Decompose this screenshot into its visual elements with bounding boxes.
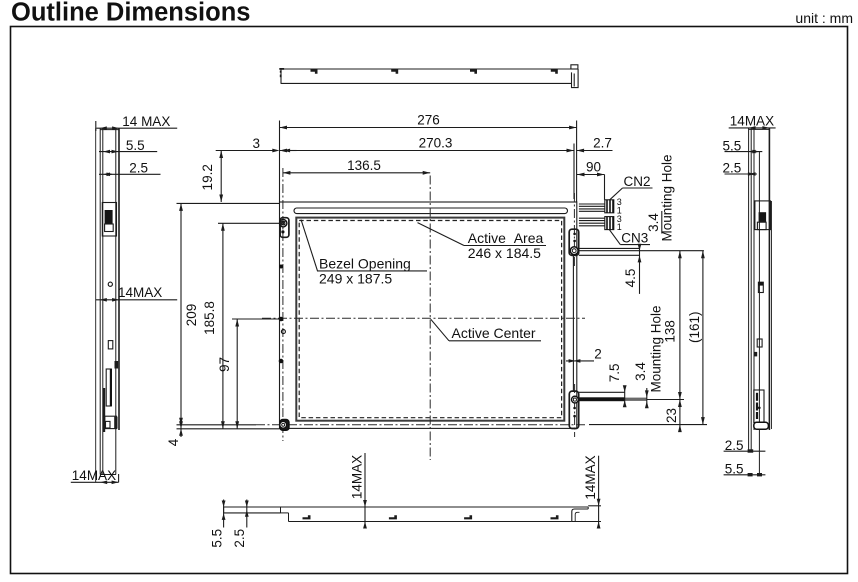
- svg-text:2.5: 2.5: [129, 161, 148, 176]
- svg-text:136.5: 136.5: [347, 158, 381, 173]
- svg-text:138: 138: [663, 320, 678, 343]
- svg-text:2: 2: [594, 347, 602, 362]
- svg-text:270.3: 270.3: [419, 135, 453, 150]
- svg-text:Mounting Hole: Mounting Hole: [660, 154, 675, 241]
- svg-text:276: 276: [417, 112, 440, 127]
- svg-text:5.5: 5.5: [126, 138, 145, 153]
- svg-text:unit : mm: unit : mm: [795, 10, 853, 26]
- svg-text:19.2: 19.2: [200, 164, 215, 190]
- svg-text:185.8: 185.8: [202, 301, 217, 335]
- svg-text:97: 97: [217, 357, 232, 372]
- svg-text:Outline Dimensions: Outline Dimensions: [11, 0, 250, 27]
- svg-text:5.5: 5.5: [209, 529, 224, 548]
- svg-text:Active Area: Active Area: [468, 230, 544, 246]
- svg-text:2.5: 2.5: [725, 438, 744, 453]
- svg-text:249 x 187.5: 249 x 187.5: [319, 271, 392, 287]
- svg-text:Mounting Hole: Mounting Hole: [648, 305, 663, 392]
- svg-text:209: 209: [184, 304, 199, 327]
- svg-text:23: 23: [664, 408, 679, 423]
- svg-text:246 x 184.5: 246 x 184.5: [468, 245, 541, 261]
- svg-text:3: 3: [252, 136, 260, 151]
- svg-text:14MAX: 14MAX: [583, 455, 598, 499]
- svg-text:4.5: 4.5: [623, 269, 638, 288]
- svg-text:4: 4: [166, 438, 181, 446]
- svg-text:Active Center: Active Center: [452, 325, 536, 341]
- svg-text:7.5: 7.5: [607, 363, 622, 382]
- svg-text:14MAX: 14MAX: [730, 114, 774, 129]
- svg-text:14 MAX: 14 MAX: [122, 114, 170, 129]
- svg-text:3.4: 3.4: [633, 362, 648, 381]
- svg-text:14MAX: 14MAX: [349, 455, 364, 499]
- svg-text:(161): (161): [687, 311, 702, 343]
- svg-text:14MAX: 14MAX: [118, 285, 162, 300]
- svg-text:14MAX: 14MAX: [72, 468, 116, 483]
- svg-text:90: 90: [586, 160, 601, 175]
- svg-text:2.5: 2.5: [232, 529, 247, 548]
- svg-text:CN3: CN3: [621, 231, 648, 246]
- svg-text:CN2: CN2: [624, 174, 651, 189]
- svg-text:2.7: 2.7: [593, 135, 612, 150]
- svg-text:Bezel Opening: Bezel Opening: [319, 255, 411, 271]
